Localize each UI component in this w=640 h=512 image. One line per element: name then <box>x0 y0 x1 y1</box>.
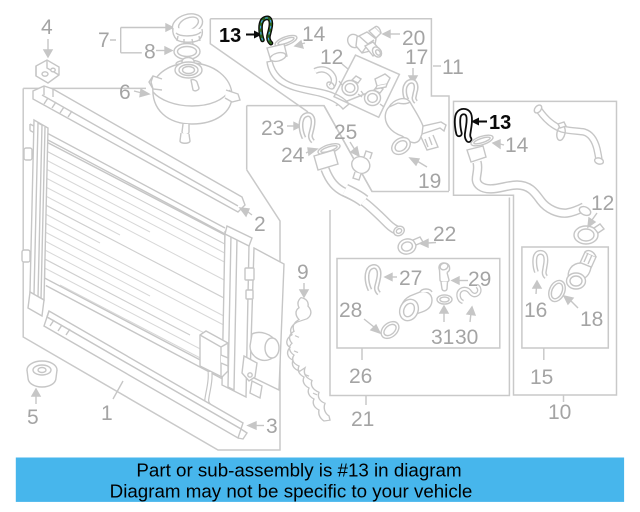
svg-text:2: 2 <box>254 213 266 236</box>
svg-text:12: 12 <box>320 46 343 69</box>
svg-text:22: 22 <box>433 223 456 246</box>
svg-text:9: 9 <box>297 261 309 284</box>
svg-text:26: 26 <box>349 365 372 388</box>
svg-text:28: 28 <box>339 299 362 322</box>
svg-text:21: 21 <box>351 408 374 431</box>
svg-text:6: 6 <box>119 81 131 104</box>
svg-text:12: 12 <box>591 192 614 215</box>
svg-text:23: 23 <box>261 117 284 140</box>
svg-text:18: 18 <box>580 308 603 331</box>
svg-text:24: 24 <box>281 144 305 167</box>
svg-text:3: 3 <box>266 415 278 438</box>
svg-text:Diagram may not be specific to: Diagram may not be specific to your vehi… <box>110 481 473 502</box>
svg-text:1: 1 <box>101 402 113 425</box>
svg-text:5: 5 <box>27 406 39 429</box>
svg-text:14: 14 <box>302 23 326 46</box>
svg-text:27: 27 <box>399 267 422 290</box>
svg-text:4: 4 <box>41 16 53 39</box>
svg-text:Part or sub-assembly is #13 in: Part or sub-assembly is #13 in diagram <box>136 460 461 481</box>
svg-text:17: 17 <box>405 46 428 69</box>
svg-text:14: 14 <box>505 134 529 157</box>
svg-text:13: 13 <box>489 112 511 134</box>
svg-text:11: 11 <box>442 56 464 79</box>
svg-text:7: 7 <box>98 29 110 52</box>
svg-text:10: 10 <box>548 401 571 424</box>
svg-text:25: 25 <box>334 121 357 144</box>
svg-text:16: 16 <box>524 299 547 322</box>
svg-text:19: 19 <box>418 170 441 193</box>
svg-text:8: 8 <box>144 41 156 64</box>
svg-text:30: 30 <box>455 326 478 349</box>
svg-text:31: 31 <box>431 326 454 349</box>
svg-text:13: 13 <box>219 25 241 47</box>
svg-text:15: 15 <box>530 366 553 389</box>
